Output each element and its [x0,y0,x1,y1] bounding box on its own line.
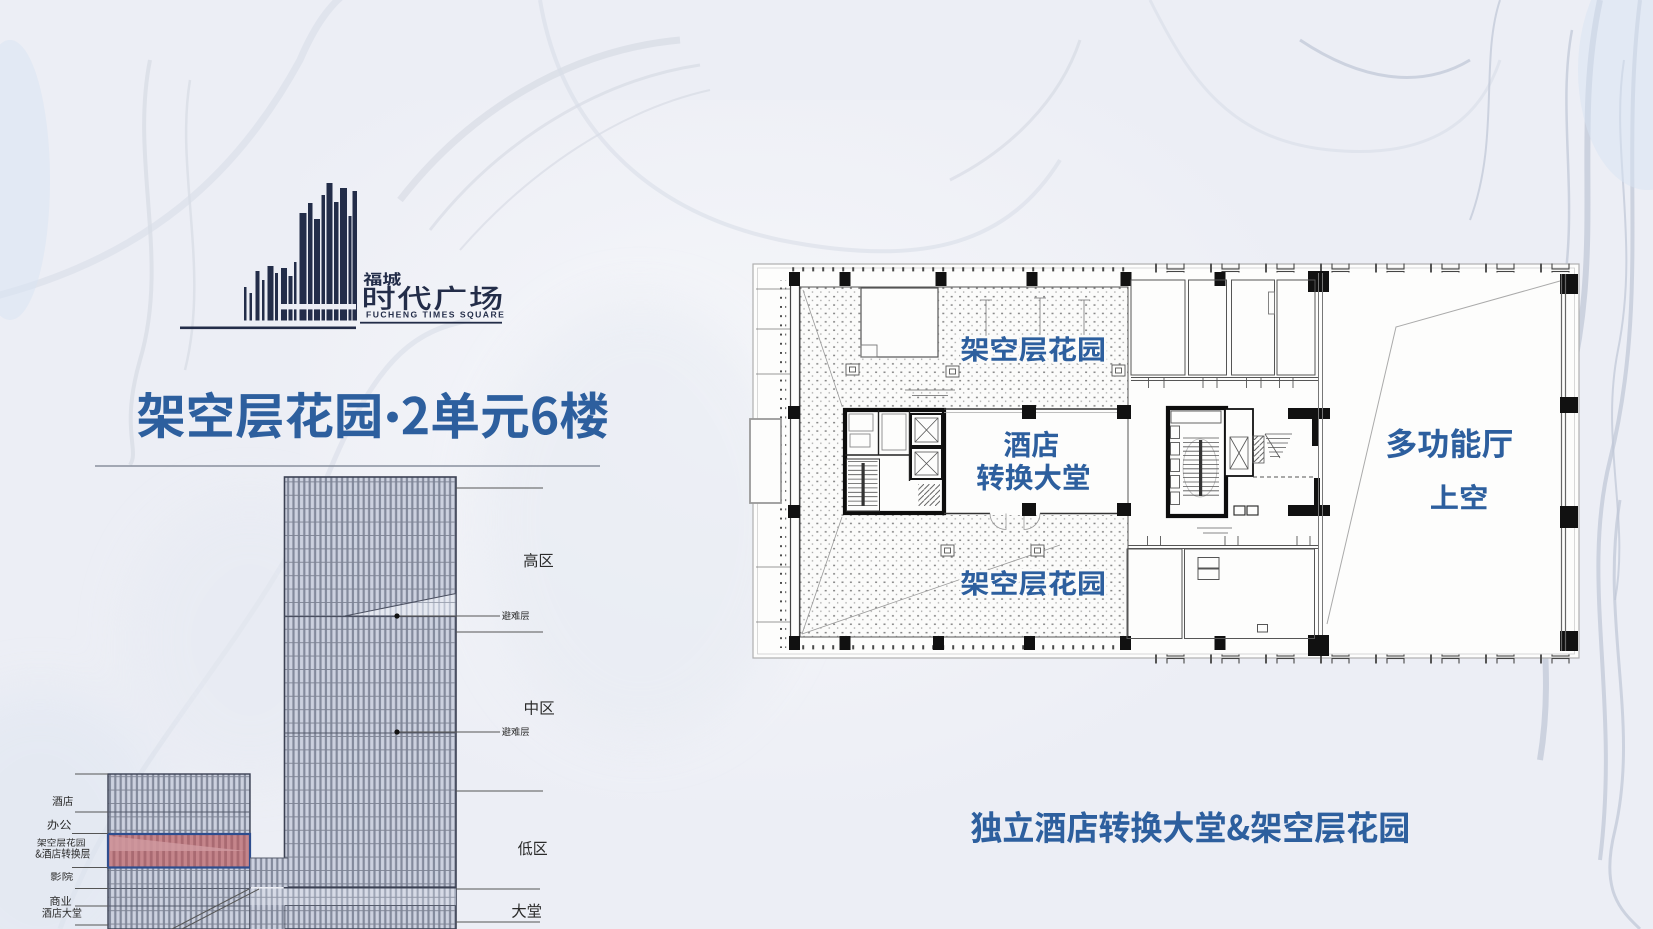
svg-text:FUCHENG TIMES SQUARE: FUCHENG TIMES SQUARE [366,310,505,320]
